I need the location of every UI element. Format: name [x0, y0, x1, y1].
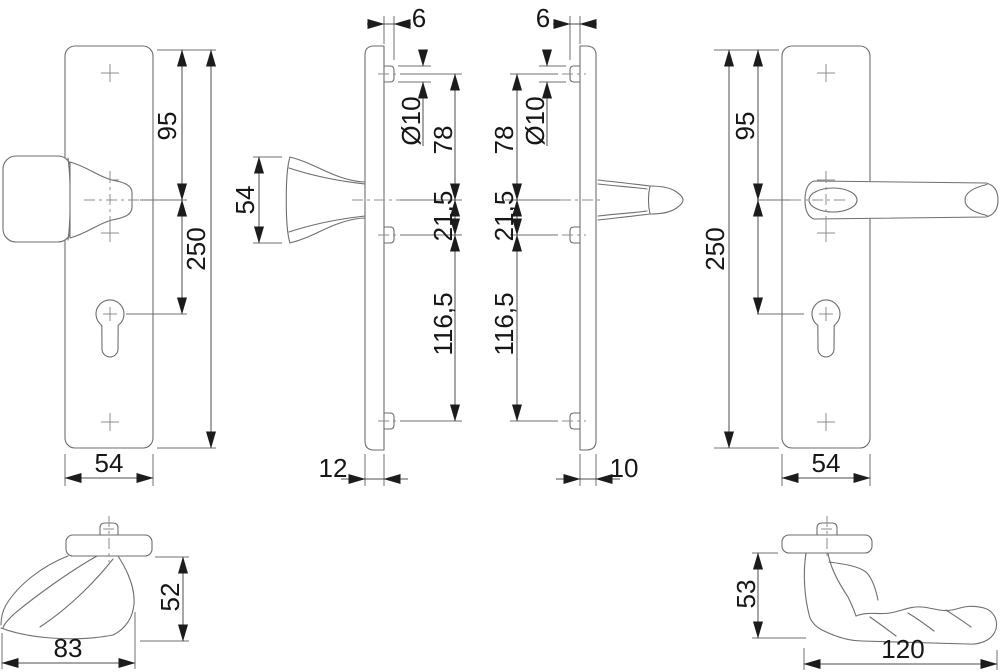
- dim-label-21-5: 21,5: [489, 191, 519, 242]
- centerlines: [352, 74, 400, 421]
- extension-lines: [752, 553, 997, 670]
- screw-bushings: [384, 66, 394, 429]
- knob-grip-top-view: [1, 556, 134, 639]
- dim-label-250: 250: [700, 227, 730, 270]
- front-view-lever-plate: 95 250 54: [700, 46, 998, 486]
- backplate-outline: [65, 46, 153, 448]
- backplate-profile: [580, 46, 596, 450]
- dim-label-116-5: 116,5: [428, 292, 458, 355]
- dim-label-10: 10: [610, 453, 639, 483]
- lever-handle-outline: [805, 181, 998, 219]
- dim-label-95: 95: [730, 112, 760, 141]
- lever-neck-profile: [598, 180, 683, 220]
- extension-lines: [505, 16, 596, 486]
- side-view-knob-plate: 54 6 Ø10 78 21,5 116,5 12: [230, 3, 462, 486]
- front-view-knob-plate: 95 250 54: [3, 46, 216, 486]
- dim-label-120: 120: [881, 634, 924, 664]
- dim-label-116-5: 116,5: [489, 292, 519, 355]
- dim-label-dia10: Ø10: [520, 96, 550, 145]
- dim-label-12: 12: [319, 453, 348, 483]
- backplate-outline: [782, 46, 870, 448]
- dim-label-6: 6: [412, 3, 426, 33]
- backplate-profile: [365, 46, 384, 450]
- door-hardware-dimension-drawing: 95 250 54 54 6 Ø10 78 21,5: [0, 0, 1000, 672]
- dim-label-21-5: 21,5: [428, 191, 458, 242]
- technical-drawing-canvas: 95 250 54 54 6 Ø10 78 21,5: [0, 0, 1000, 672]
- screw-bushings: [570, 66, 580, 429]
- dim-label-54: 54: [95, 448, 124, 478]
- side-view-lever-plate: 6 Ø10 78 21,5 116,5 10: [489, 3, 683, 486]
- dim-label-250: 250: [181, 227, 211, 270]
- dim-label-52: 52: [155, 583, 185, 612]
- dim-label-53: 53: [731, 580, 761, 609]
- dim-label-dia10: Ø10: [396, 96, 426, 145]
- extension-lines: [253, 16, 462, 486]
- top-view-lever: 53 120: [731, 516, 997, 670]
- dim-label-6: 6: [536, 3, 550, 33]
- dim-label-78: 78: [428, 126, 458, 155]
- dim-label-54: 54: [812, 448, 841, 478]
- dim-label-54-knob: 54: [230, 186, 260, 215]
- dim-label-78: 78: [489, 126, 519, 155]
- lever-grip-top-view: [804, 553, 996, 644]
- extension-lines: [2, 557, 189, 669]
- dim-label-83: 83: [54, 633, 83, 663]
- top-view-knob: 52 83: [1, 516, 189, 669]
- dim-label-95: 95: [152, 112, 182, 141]
- knob-grip-front: [3, 156, 71, 242]
